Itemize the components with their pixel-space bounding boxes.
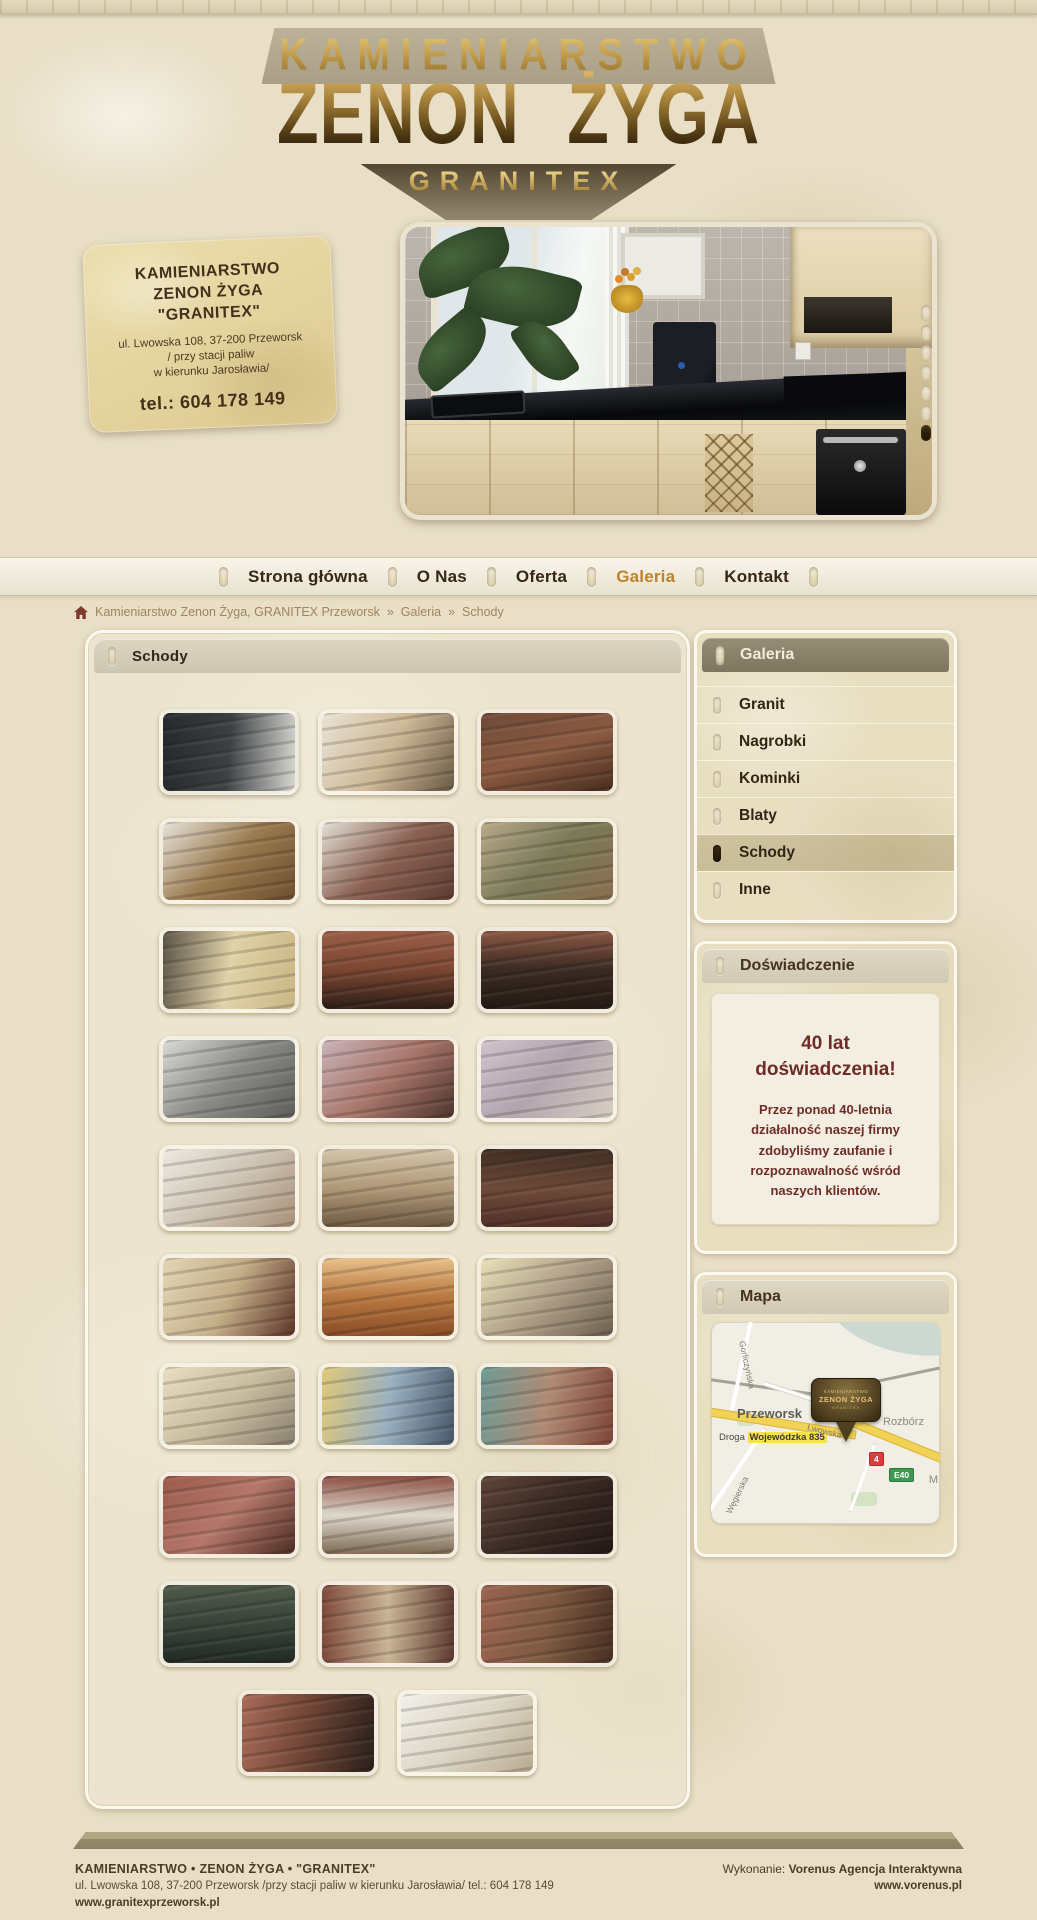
galeria-menu-item-schody[interactable]: Schody: [697, 834, 954, 871]
footer-credit-label: Wykonanie:: [723, 1862, 786, 1876]
gallery-thumbnail-9[interactable]: [477, 927, 617, 1013]
bullet-icon: [713, 697, 721, 714]
slider-dot-3[interactable]: [921, 345, 931, 361]
home-icon[interactable]: [74, 606, 88, 619]
gallery-panel-header: Schody: [94, 639, 681, 673]
baluster-icon: [716, 957, 724, 975]
gallery-thumbnail-21[interactable]: [477, 1363, 617, 1449]
nav-separator-icon: [487, 567, 496, 587]
breadcrumb-galeria-link[interactable]: Galeria: [401, 605, 441, 619]
bullet-icon: [713, 734, 721, 751]
bullet-icon: [713, 882, 721, 899]
kitchen-corner-cabinet: [790, 227, 932, 348]
footer-vorenus-link[interactable]: www.vorenus.pl: [874, 1880, 962, 1892]
nav-item-oferta[interactable]: Oferta: [516, 567, 567, 587]
nav-item-kontakt[interactable]: Kontakt: [724, 567, 789, 587]
galeria-box: Galeria GranitNagrobkiKominkiBlatySchody…: [694, 630, 957, 923]
experience-text: Przez ponad 40-letnia działalność naszej…: [727, 1100, 924, 1201]
map-pin-logo: KAMIENIARSTWO ZENON ŻYGA GRANITEX: [811, 1378, 881, 1422]
map-edge-label: M: [929, 1474, 938, 1486]
gallery-thumbnail-18[interactable]: [477, 1254, 617, 1340]
map-road-badge-4: 4: [869, 1452, 884, 1466]
top-decorative-border: [0, 0, 1037, 15]
gallery-grid: [136, 709, 639, 1776]
gallery-thumbnail-6[interactable]: [477, 818, 617, 904]
baluster-icon: [716, 646, 724, 664]
gallery-thumbnail-28[interactable]: [238, 1690, 378, 1776]
map-box: Mapa Gorliczyńska Przeworsk Roz: [694, 1272, 957, 1557]
galeria-menu-item-kominki[interactable]: Kominki: [697, 760, 954, 797]
gallery-thumbnail-7[interactable]: [159, 927, 299, 1013]
nav-separator-icon: [809, 567, 818, 587]
bullet-icon: [713, 808, 721, 825]
slider-dot-5[interactable]: [921, 385, 931, 401]
logo-line-granitex: GRANITEX: [0, 168, 1037, 195]
galeria-menu-item-granit[interactable]: Granit: [697, 686, 954, 723]
wine-rack: [705, 434, 752, 512]
gallery-thumbnail-19[interactable]: [159, 1363, 299, 1449]
bullet-icon: [713, 771, 721, 788]
footer-credits: Wykonanie: Vorenus Agencja Interaktywna …: [723, 1862, 962, 1911]
nav-item-o-nas[interactable]: O Nas: [417, 567, 467, 587]
kitchen-sink: [431, 390, 526, 418]
gallery-thumbnail-12[interactable]: [477, 1036, 617, 1122]
map-river: [826, 1322, 940, 1368]
breadcrumb-root-link[interactable]: Kamieniarstwo Zenon Żyga, GRANITEX Przew…: [95, 605, 380, 619]
slider-dot-1[interactable]: [921, 305, 931, 321]
map-village-label: Rozbórz: [883, 1416, 924, 1428]
map-road-badge-e40: E40: [889, 1468, 914, 1482]
gallery-thumbnail-26[interactable]: [318, 1581, 458, 1667]
slider-dot-6[interactable]: [921, 405, 931, 421]
gallery-title: Schody: [132, 648, 188, 665]
baluster-icon: [108, 647, 116, 665]
gallery-thumbnail-24[interactable]: [477, 1472, 617, 1558]
breadcrumb-current: Schody: [462, 605, 504, 619]
map-pin-tip: [836, 1422, 856, 1442]
gallery-thumbnail-20[interactable]: [318, 1363, 458, 1449]
footer-address: ul. Lwowska 108, 37-200 Przeworsk /przy …: [75, 1880, 554, 1892]
nav-separator-icon: [587, 567, 596, 587]
gallery-thumbnail-5[interactable]: [318, 818, 458, 904]
gallery-thumbnail-14[interactable]: [318, 1145, 458, 1231]
nav-separator-icon: [388, 567, 397, 587]
company-phone: tel.: 604 178 149: [89, 386, 338, 417]
kitchen-photo-illustration: [405, 227, 932, 515]
nav-separator-icon: [695, 567, 704, 587]
experience-box-title: Doświadczenie: [740, 957, 855, 975]
main-content: Schody Galeria GranitNagrobkiKominkiBlat…: [85, 630, 957, 1809]
gallery-thumbnail-2[interactable]: [318, 709, 458, 795]
gallery-thumbnail-23[interactable]: [318, 1472, 458, 1558]
galeria-menu-item-blaty[interactable]: Blaty: [697, 797, 954, 834]
gallery-thumbnail-8[interactable]: [318, 927, 458, 1013]
slider-dot-7[interactable]: [921, 425, 931, 441]
galeria-menu-item-nagrobki[interactable]: Nagrobki: [697, 723, 954, 760]
gallery-thumbnail-25[interactable]: [159, 1581, 299, 1667]
breadcrumb-separator: »: [448, 605, 455, 619]
slider-dots: [921, 305, 931, 441]
gallery-panel: Schody: [85, 630, 690, 1809]
nav-separator-icon: [219, 567, 228, 587]
footer-website-link[interactable]: www.granitexprzeworsk.pl: [75, 1897, 220, 1909]
flower-pot: [611, 285, 643, 313]
gallery-thumbnail-1[interactable]: [159, 709, 299, 795]
gallery-thumbnail-13[interactable]: [159, 1145, 299, 1231]
gallery-thumbnail-16[interactable]: [159, 1254, 299, 1340]
nav-item-strona-glowna[interactable]: Strona główna: [248, 567, 368, 587]
banner-slider-photo[interactable]: [400, 222, 937, 520]
company-name: KAMIENIARSTWO ZENON ŻYGA "GRANITEX": [83, 257, 333, 330]
gallery-thumbnail-15[interactable]: [477, 1145, 617, 1231]
gallery-thumbnail-22[interactable]: [159, 1472, 299, 1558]
slider-dot-4[interactable]: [921, 365, 931, 381]
nav-item-galeria[interactable]: Galeria: [616, 567, 675, 587]
map-pin-granitex[interactable]: KAMIENIARSTWO ZENON ŻYGA GRANITEX: [810, 1378, 882, 1442]
banner: KAMIENIARSTWO ZENON ŻYGA "GRANITEX" ul. …: [0, 222, 1037, 522]
page: KAMIENIARSTWO ZENON ŻYGA GRANITEX KAMIEN…: [0, 0, 1037, 1920]
site-logo: KAMIENIARSTWO ZENON ŻYGA GRANITEX: [0, 20, 1037, 151]
gallery-thumbnail-11[interactable]: [318, 1036, 458, 1122]
galeria-box-title: Galeria: [740, 646, 794, 664]
experience-box: Doświadczenie 40 lat doświadczenia! Prze…: [694, 941, 957, 1254]
logo-line-zenon-zyga: ZENON ŻYGA: [41, 71, 995, 157]
gallery-thumbnail-4[interactable]: [159, 818, 299, 904]
main-nav: Strona głównaO NasOfertaGaleriaKontakt: [0, 557, 1037, 596]
map-city-label: Przeworsk: [737, 1406, 802, 1421]
breadcrumb-separator: »: [387, 605, 394, 619]
map[interactable]: Gorliczyńska Przeworsk Rozbórz Droga Woj…: [711, 1322, 940, 1524]
breadcrumb: Kamieniarstwo Zenon Żyga, GRANITEX Przew…: [74, 605, 504, 619]
galeria-menu-item-inne[interactable]: Inne: [697, 871, 954, 908]
company-address: ul. Lwowska 108, 37-200 Przeworsk / przy…: [86, 329, 336, 384]
footer-credit-line: Wykonanie: Vorenus Agencja Interaktywna: [723, 1862, 962, 1876]
footer-company-name: KAMIENIARSTWO • ZENON ŻYGA • "GRANITEX": [75, 1862, 554, 1876]
gallery-thumbnail-29[interactable]: [397, 1690, 537, 1776]
baluster-icon: [716, 1288, 724, 1306]
slider-dot-2[interactable]: [921, 325, 931, 341]
gallery-thumbnail-27[interactable]: [477, 1581, 617, 1667]
experience-box-header: Doświadczenie: [702, 949, 949, 983]
galeria-menu: GranitNagrobkiKominkiBlatySchodyInne: [697, 686, 954, 920]
oven: [816, 429, 906, 515]
gallery-thumbnail-17[interactable]: [318, 1254, 458, 1340]
footer: KAMIENIARSTWO • ZENON ŻYGA • "GRANITEX" …: [75, 1862, 962, 1911]
experience-card: 40 lat doświadczenia! Przez ponad 40-let…: [711, 993, 940, 1225]
wall-socket: [795, 342, 811, 360]
map-box-header: Mapa: [702, 1280, 949, 1314]
company-info-card: KAMIENIARSTWO ZENON ŻYGA "GRANITEX" ul. …: [82, 235, 338, 433]
gallery-thumbnail-3[interactable]: [477, 709, 617, 795]
footer-credit-agency: Vorenus Agencja Interaktywna: [789, 1862, 962, 1876]
gallery-thumbnail-10[interactable]: [159, 1036, 299, 1122]
galeria-box-header: Galeria: [702, 638, 949, 672]
footer-company-info: KAMIENIARSTWO • ZENON ŻYGA • "GRANITEX" …: [75, 1862, 554, 1911]
footer-decorative-beam: [73, 1832, 964, 1849]
sidebar: Galeria GranitNagrobkiKominkiBlatySchody…: [694, 630, 957, 1557]
map-box-title: Mapa: [740, 1288, 781, 1306]
experience-headline: 40 lat doświadczenia!: [727, 1031, 924, 1082]
bullet-icon: [713, 845, 721, 862]
